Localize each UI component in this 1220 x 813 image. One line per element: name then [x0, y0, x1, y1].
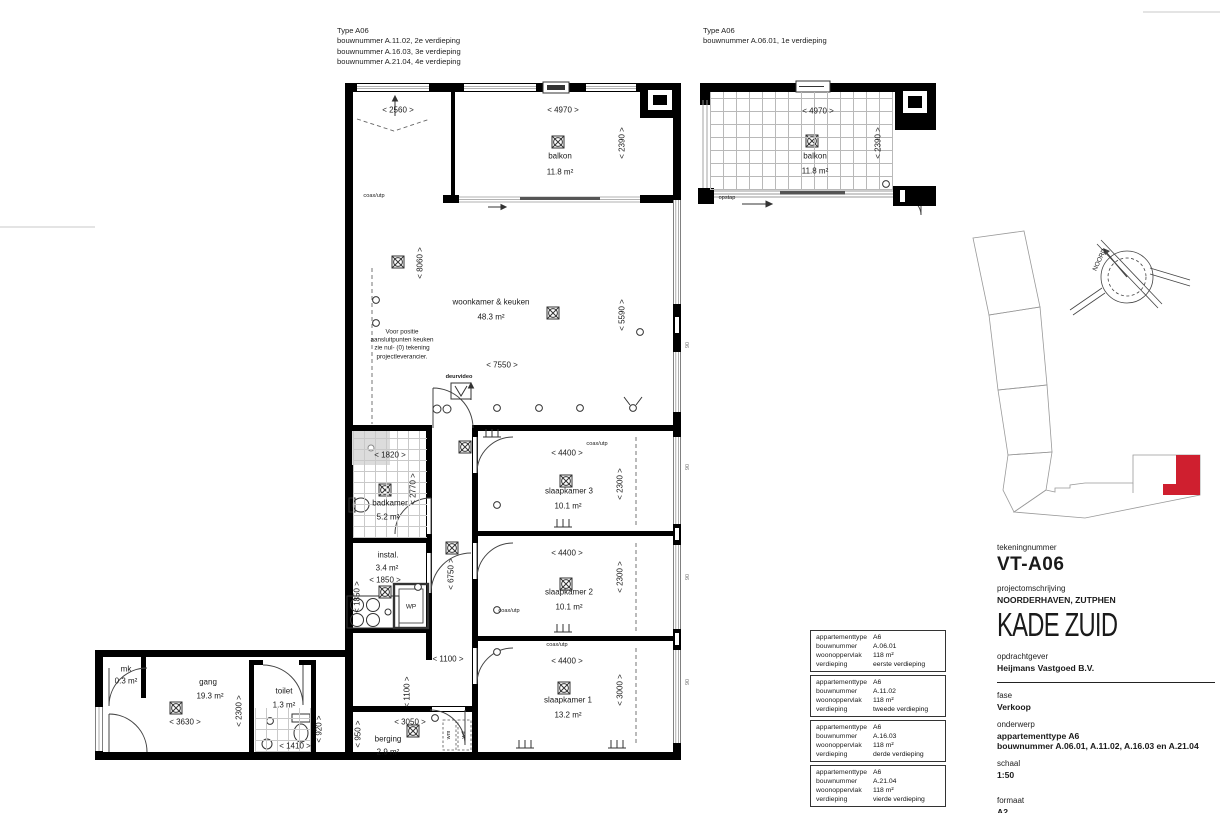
row-label: bouwnummer — [816, 732, 873, 741]
dim-3000: < 3000 > — [615, 674, 624, 706]
room-name-slaapkamer1: slaapkamer 1 — [544, 695, 592, 704]
fase-label: fase — [997, 691, 1215, 700]
fase-value: Verkoop — [997, 702, 1215, 712]
room-area-woonkamer: 48.3 m² — [477, 312, 504, 321]
formaat-label: formaat — [997, 796, 1215, 805]
site-plan — [973, 231, 1200, 518]
room-area-slaapkamer2: 10.1 m² — [555, 602, 582, 611]
room-area-slaapkamer3: 10.1 m² — [554, 501, 581, 510]
row-label: appartementtype — [816, 768, 873, 777]
dim-2770: < 2770 > — [408, 473, 417, 505]
row-value: A6 — [873, 724, 881, 731]
dim-4400-sl1: < 4400 > — [551, 656, 583, 665]
dim-1820: < 1820 > — [374, 450, 406, 459]
window-code: 90 — [685, 679, 691, 685]
row-value: A.16.03 — [873, 733, 896, 740]
room-name-instal: instal. — [378, 550, 399, 559]
dim-1850-w: < 1850 > — [369, 575, 401, 584]
row-label: woonoppervlak — [816, 741, 873, 750]
door-arcs — [109, 199, 921, 752]
client-name: Heijmans Vastgoed B.V. — [997, 663, 1215, 673]
plan-header-left: Type A06 bouwnummer A.11.02, 2e verdiepi… — [337, 26, 461, 67]
row-label: appartementtype — [816, 723, 873, 732]
compass — [1070, 240, 1190, 315]
room-name-slaapkamer3: slaapkamer 3 — [545, 486, 593, 495]
dim-3630: < 3630 > — [169, 717, 201, 726]
wm-label: wm — [446, 731, 452, 740]
unit-tables: appartementtypeA6 bouwnummerA.06.01 woon… — [810, 630, 946, 810]
coax-utp-label: coax/utp — [586, 441, 607, 447]
wp-label: WP — [406, 603, 416, 610]
schaal-value: 1:50 — [997, 770, 1215, 780]
unit-table-a1603: appartementtypeA6 bouwnummerA.16.03 woon… — [810, 720, 946, 762]
row-value: 118 m² — [873, 742, 894, 749]
type-label: Type A06 — [337, 26, 461, 36]
row-value: A6 — [873, 769, 881, 776]
dim-2300-gang: < 2300 > — [234, 695, 243, 727]
row-label: verdieping — [816, 795, 873, 804]
row-label: appartementtype — [816, 633, 873, 642]
room-area-toilet: 1.3 m² — [273, 700, 296, 709]
row-value: eerste verdieping — [873, 661, 925, 668]
room-area-badkamer: 5.2 m² — [377, 512, 400, 521]
row-label: verdieping — [816, 750, 873, 759]
plan-walls — [95, 83, 681, 760]
room-name-balkon-right: balkon — [803, 151, 827, 160]
dim-4400-sl2: < 4400 > — [551, 548, 583, 557]
row-value: A.11.02 — [873, 688, 896, 695]
window-code: 90 — [685, 464, 691, 470]
dim-2300-sl2: < 2300 > — [615, 561, 624, 593]
project-title: KADE ZUID — [997, 606, 1154, 644]
dim-920: < 920 > — [314, 715, 323, 742]
formaat-value: A2 — [997, 807, 1215, 813]
row-value: 118 m² — [873, 652, 894, 659]
row-label: bouwnummer — [816, 777, 873, 786]
row-value: 118 m² — [873, 697, 894, 704]
coax-utp-label: coax/utp — [363, 193, 384, 199]
dim-2300-sl3: < 2300 > — [615, 468, 624, 500]
drawing-number: VT-A06 — [997, 554, 1215, 576]
dim-1850-h: < 1850 > — [352, 581, 361, 613]
row-value: A6 — [873, 679, 881, 686]
room-name-mk: mk — [121, 664, 132, 673]
room-name-woonkamer: woonkamer & keuken — [453, 297, 530, 306]
bouwnummer-line: bouwnummer A.06.01, 1e verdieping — [703, 36, 827, 46]
row-label: woonoppervlak — [816, 696, 873, 705]
room-name-berging: berging — [375, 734, 402, 743]
deurvideo-label: deurvideo — [446, 374, 473, 380]
dim-2390: < 2390 > — [617, 127, 626, 159]
bouwnummer-line: bouwnummer A.11.02, 2e verdieping — [337, 36, 461, 46]
opdrachtgever-label: opdrachtgever — [997, 652, 1215, 661]
room-area-instal: 3.4 m² — [376, 563, 399, 572]
room-area-mk: 0.3 m² — [115, 676, 138, 685]
unit-table-a0601: appartementtypeA6 bouwnummerA.06.01 woon… — [810, 630, 946, 672]
row-label: woonoppervlak — [816, 786, 873, 795]
dim-7550: < 7550 > — [486, 360, 518, 369]
bouwnummer-line: bouwnummer A.21.04, 4e verdieping — [337, 57, 461, 67]
room-area-balkon-right: 11.8 m² — [802, 166, 829, 175]
window-code: 90 — [685, 342, 691, 348]
room-area-gang: 19.3 m² — [196, 691, 223, 700]
coax-utp-label: coax/utp — [498, 608, 519, 614]
tekeningnummer-label: tekeningnummer — [997, 543, 1215, 552]
drawing-sheet: Type A06 bouwnummer A.11.02, 2e verdiepi… — [0, 0, 1220, 813]
dim-4970-right: < 4970 > — [802, 106, 834, 115]
row-value: A6 — [873, 634, 881, 641]
dim-4970: < 4970 > — [547, 105, 579, 114]
dim-3050: < 3050 > — [394, 717, 426, 726]
room-area-berging: 2.9 m² — [377, 747, 400, 756]
dim-6750: < 6750 > — [446, 558, 455, 590]
dim-2560: < 2560 > — [382, 105, 414, 114]
dim-950: < 950 > — [353, 720, 362, 747]
row-value: A.21.04 — [873, 778, 896, 785]
row-value: 118 m² — [873, 787, 894, 794]
row-value: A.06.01 — [873, 643, 896, 650]
wd-label: wd — [461, 731, 467, 738]
room-name-slaapkamer2: slaapkamer 2 — [545, 587, 593, 596]
plan-header-right: Type A06 bouwnummer A.06.01, 1e verdiepi… — [703, 26, 827, 47]
row-label: verdieping — [816, 705, 873, 714]
title-block: tekeningnummer VT-A06 projectomschrijvin… — [997, 543, 1215, 813]
room-area-slaapkamer1: 13.2 m² — [554, 710, 581, 719]
bouwnummer-line: bouwnummer A.16.03, 3e verdieping — [337, 47, 461, 57]
projectomschrijving-label: projectomschrijving — [997, 584, 1215, 593]
ceiling-lights — [170, 135, 818, 737]
row-label: bouwnummer — [816, 687, 873, 696]
onderwerp-label: onderwerp — [997, 720, 1215, 729]
window-code: 90 — [685, 574, 691, 580]
dim-1410: < 1410 > — [279, 741, 311, 750]
type-label: Type A06 — [703, 26, 827, 36]
row-value: vierde verdieping — [873, 796, 925, 803]
room-area-balkon: 11.8 m² — [547, 167, 574, 176]
room-name-balkon: balkon — [548, 151, 572, 160]
dim-1100-w: < 1100 > — [433, 654, 464, 663]
room-name-toilet: toilet — [276, 686, 293, 695]
room-name-badkamer: badkamer — [372, 498, 408, 507]
row-label: appartementtype — [816, 678, 873, 687]
opstap-label: opstap — [719, 195, 736, 201]
room-name-gang: gang — [199, 677, 217, 686]
project-description: NOORDERHAVEN, ZUTPHEN — [997, 595, 1215, 605]
dim-1100-h: < 1100 > — [402, 677, 411, 708]
coax-utp-label: coax/utp — [546, 642, 567, 648]
dim-2390-right: < 2390 > — [873, 127, 882, 159]
dim-8060: < 8060 > — [415, 247, 424, 279]
kitchen-note: Voor positie aansluitpunten keuken zie n… — [370, 329, 433, 362]
row-label: verdieping — [816, 660, 873, 669]
onderwerp-line1: appartementtype A6 — [997, 731, 1215, 741]
row-label: bouwnummer — [816, 642, 873, 651]
highlighted-unit — [1163, 455, 1200, 495]
schaal-label: schaal — [997, 759, 1215, 768]
row-value: derde verdieping — [873, 751, 924, 758]
dim-4400-sl3: < 4400 > — [551, 448, 583, 457]
title-block-divider — [997, 682, 1215, 683]
dim-5590: < 5590 > — [617, 299, 626, 331]
unit-table-a2104: appartementtypeA6 bouwnummerA.21.04 woon… — [810, 765, 946, 807]
onderwerp-line2: bouwnummer A.06.01, A.11.02, A.16.03 en … — [997, 741, 1215, 751]
row-label: woonoppervlak — [816, 651, 873, 660]
row-value: tweede verdieping — [873, 706, 928, 713]
unit-table-a1102: appartementtypeA6 bouwnummerA.11.02 woon… — [810, 675, 946, 717]
